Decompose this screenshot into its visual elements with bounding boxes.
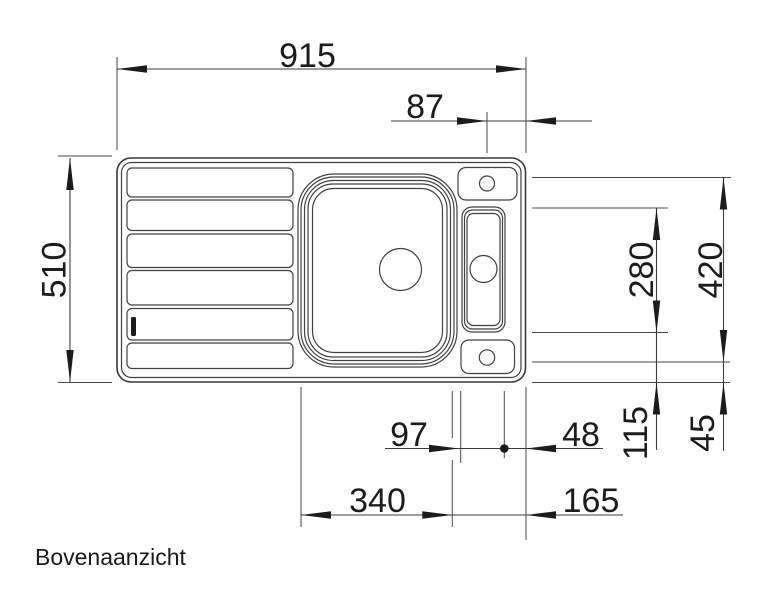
arrow-down (653, 301, 660, 333)
dim-label-span-to-front: 45 (684, 414, 722, 452)
brand-logo-mark (131, 317, 136, 336)
dim-label-total-depth: 510 (36, 242, 74, 299)
dim-label-remote-to-front: 115 (617, 406, 655, 460)
main-bowl (298, 174, 457, 367)
dim-label-right-section: 165 (563, 482, 620, 520)
arrow-left (117, 65, 147, 72)
sink-top-view-drawing: 915 87 510 280 420 115 45 97 48 340 165 … (0, 0, 780, 600)
arrow-right (422, 511, 452, 518)
dimension-labels: 915 87 510 280 420 115 45 97 48 340 165 (36, 37, 731, 520)
reference-dot (500, 444, 509, 453)
tap-hole-top (458, 168, 517, 201)
main-drain-hole (380, 249, 422, 291)
tap-hole-bottom (461, 340, 515, 374)
arrow-left (526, 445, 556, 452)
arrow-right (496, 65, 526, 72)
drainboard-rib (127, 343, 293, 369)
arrow-left (526, 511, 556, 518)
drainboard-rib (127, 234, 293, 268)
tap-recess (461, 340, 515, 374)
remote-bowl-rim (462, 207, 505, 332)
arrow-down (66, 350, 73, 382)
arrow-left (301, 511, 331, 518)
drainboard-rib (127, 271, 293, 306)
arrow-left (526, 117, 556, 124)
main-bowl-rim (301, 177, 454, 364)
arrow-right (457, 117, 487, 124)
dim-label-remote-bowl-width: 97 (390, 416, 428, 454)
technical-drawing-page: 915 87 510 280 420 115 45 97 48 340 165 … (0, 0, 780, 600)
drainboard-rib (127, 309, 293, 341)
remote-drain-hole (470, 256, 497, 283)
dim-label-remote-to-edge: 48 (562, 416, 600, 454)
arrow-up (720, 383, 727, 415)
tap-hole (479, 350, 494, 365)
main-bowl-floor (313, 189, 443, 353)
drainboard (127, 168, 293, 369)
main-bowl-rim (298, 174, 457, 367)
arrow-up (720, 178, 727, 210)
dim-label-tap-span: 420 (692, 242, 730, 299)
dim-label-remote-bowl-length: 280 (623, 242, 661, 299)
view-caption: Bovenaanzicht (35, 544, 186, 570)
arrow-down (720, 330, 727, 362)
arrow-up (66, 158, 73, 190)
dim-label-tap-offset: 87 (406, 88, 444, 126)
drainboard-rib (127, 168, 293, 197)
tap-recess (458, 168, 517, 201)
main-bowl-rim (308, 184, 447, 357)
drainboard-rib (127, 200, 293, 231)
remote-bowl (462, 207, 505, 332)
tap-hole (480, 176, 495, 191)
arrow-up (653, 208, 660, 240)
arrow-right (429, 445, 459, 452)
dim-label-total-width: 915 (279, 37, 336, 75)
remote-bowl-floor (467, 214, 500, 326)
dim-label-main-bowl-width: 340 (349, 482, 406, 520)
main-bowl-rim (305, 181, 451, 361)
